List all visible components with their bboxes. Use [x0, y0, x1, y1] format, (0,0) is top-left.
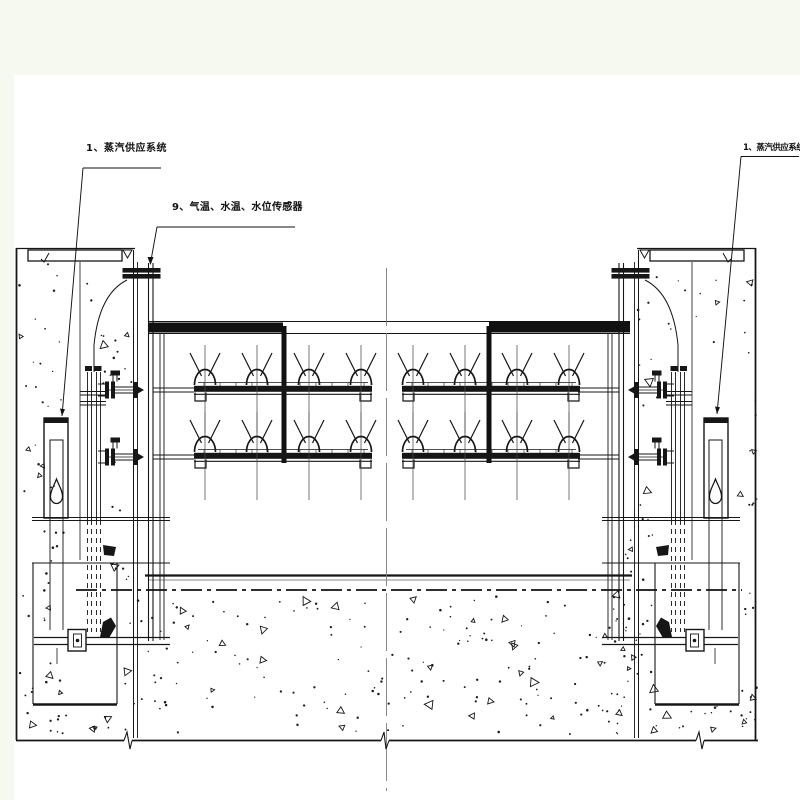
cylinder-cap	[44, 418, 68, 423]
top-manifold-left	[148, 323, 283, 333]
label-text: 1、蒸汽供应系统	[743, 142, 800, 153]
gate-elevation-drawing: 1、蒸汽供应系统 9、气温、水温、水位传感器 1、蒸汽供应系统	[0, 0, 800, 800]
sensor-bracket	[123, 269, 160, 273]
sensor-bracket2	[123, 275, 160, 279]
top-manifold-right	[489, 321, 630, 333]
valve-stem	[76, 639, 80, 643]
label-text: 9、气温、水温、水位传感器	[172, 200, 304, 213]
label-text: 1、蒸汽供应系统	[86, 141, 167, 154]
technical-drawing-page: 1、蒸汽供应系统 9、气温、水温、水位传感器 1、蒸汽供应系统	[0, 0, 800, 800]
